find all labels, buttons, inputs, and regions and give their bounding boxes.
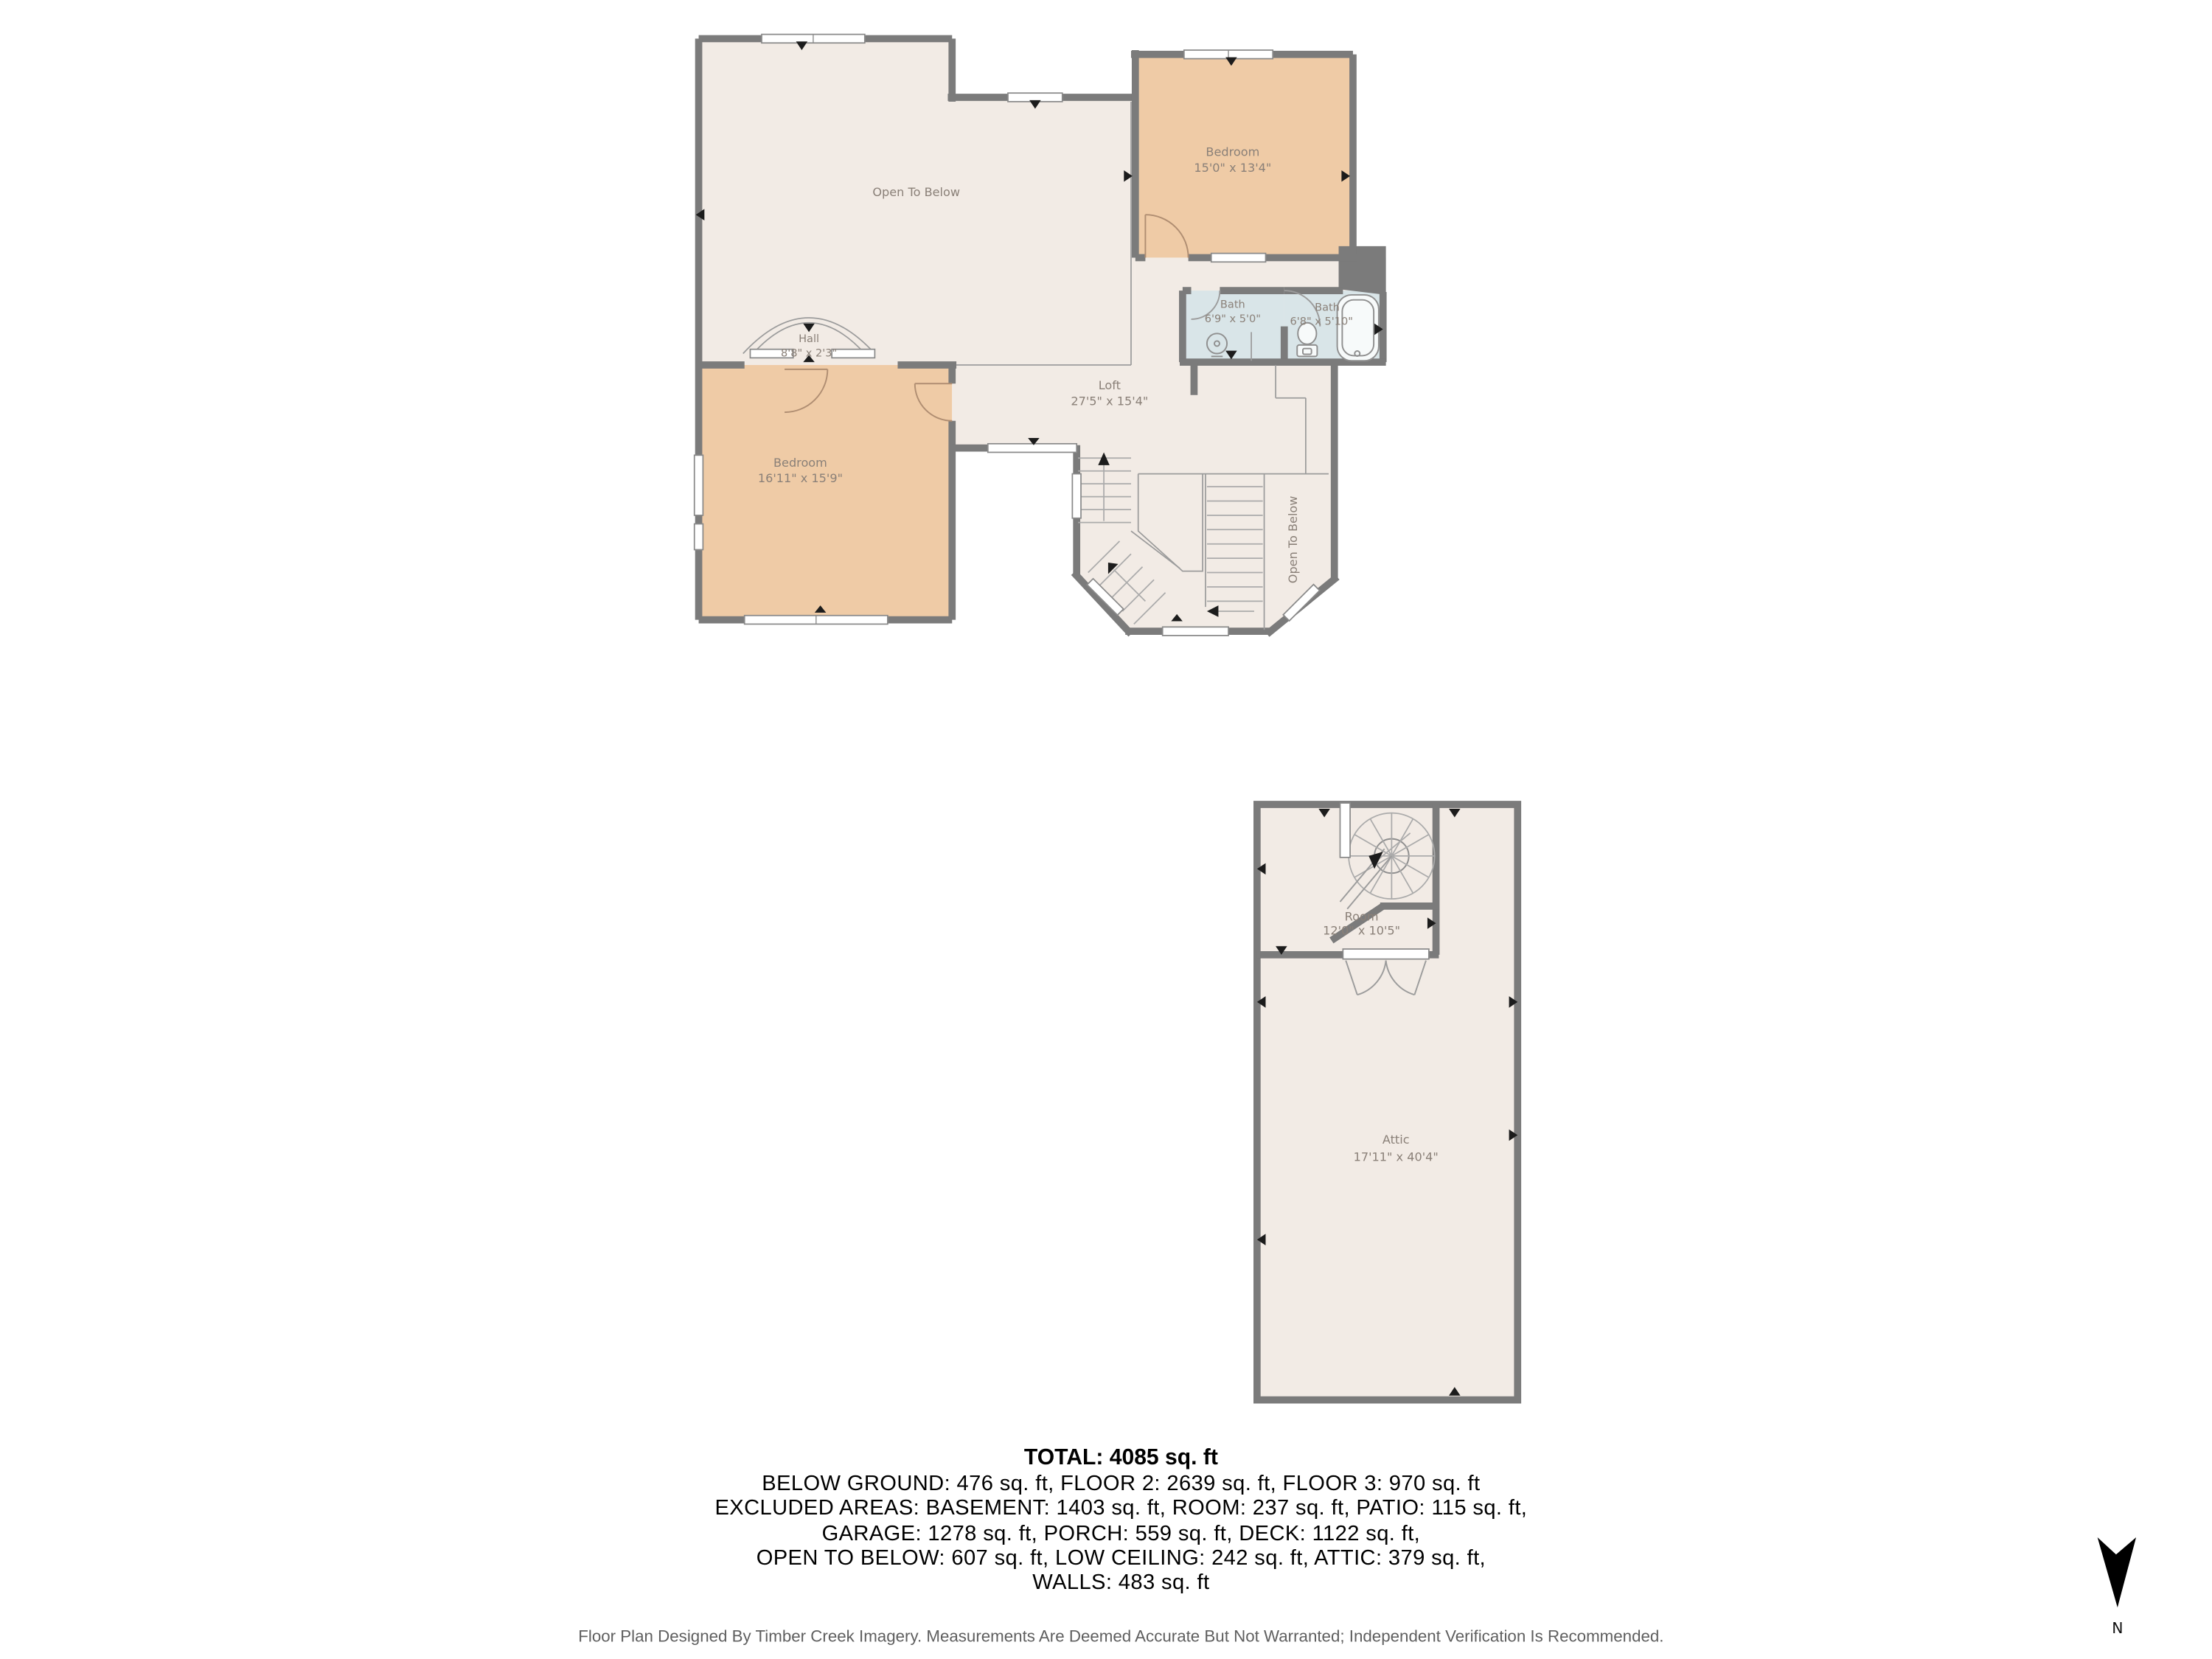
- summary-line-6: WALLS: 483 sq. ft: [1032, 1571, 1209, 1594]
- north-arrow-icon: [2098, 1537, 2136, 1607]
- open-to-below-label: Open To Below: [872, 185, 960, 199]
- north-arrow: N: [2098, 1537, 2136, 1637]
- bedroom2-dims: 16'11" x 15'9": [758, 471, 843, 485]
- bath1-dims: 6'9" x 5'0": [1205, 313, 1261, 325]
- hall-label: Hall: [799, 333, 819, 345]
- area-summary: TOTAL: 4085 sq. ft BELOW GROUND: 476 sq.…: [714, 1445, 1527, 1594]
- attic-area: [1257, 804, 1517, 1400]
- floor-plan-svg: Open To Below Bedroom 15'0" x 13'4" Bath…: [0, 0, 2212, 1659]
- summary-line-4: GARAGE: 1278 sq. ft, PORCH: 559 sq. ft, …: [822, 1522, 1421, 1545]
- summary-line-5: OPEN TO BELOW: 607 sq. ft, LOW CEILING: …: [757, 1546, 1486, 1570]
- floor3-plan: Room 12'0" x 10'5" Attic 17'11" x 40'4": [1257, 803, 1517, 1400]
- bedroom2-area: [699, 365, 953, 620]
- total-area-text: TOTAL: 4085 sq. ft: [1024, 1445, 1218, 1470]
- bedroom2-label: Bedroom: [773, 456, 827, 470]
- open-to-below-stair-label: Open To Below: [1286, 496, 1300, 584]
- loft-label: Loft: [1099, 378, 1121, 392]
- north-label: N: [2112, 1619, 2123, 1637]
- room-label: Room: [1345, 909, 1379, 923]
- room-dims: 12'0" x 10'5": [1323, 924, 1400, 938]
- attic-label: Attic: [1382, 1133, 1410, 1147]
- bath2-dims: 6'8" x 5'10": [1290, 316, 1353, 328]
- summary-line-2: BELOW GROUND: 476 sq. ft, FLOOR 2: 2639 …: [762, 1472, 1480, 1495]
- bath1-label: Bath: [1220, 298, 1245, 310]
- summary-line-3: EXCLUDED AREAS: BASEMENT: 1403 sq. ft, R…: [714, 1496, 1527, 1520]
- open-to-below-area: [699, 38, 1135, 365]
- bath2-label: Bath: [1315, 301, 1340, 313]
- bedroom1-dims: 15'0" x 13'4": [1194, 161, 1271, 175]
- bedroom1-label: Bedroom: [1206, 145, 1259, 159]
- attic-dims: 17'11" x 40'4": [1354, 1150, 1439, 1164]
- loft-dims: 27'5" x 15'4": [1071, 394, 1148, 408]
- floor-plan-page: Open To Below Bedroom 15'0" x 13'4" Bath…: [0, 0, 2212, 1659]
- disclaimer-text: Floor Plan Designed By Timber Creek Imag…: [578, 1627, 1663, 1646]
- hall-dims: 8'8" x 2'3": [781, 347, 837, 359]
- floor2-plan: Open To Below Bedroom 15'0" x 13'4" Bath…: [695, 35, 1386, 636]
- wall-chunk: [1339, 246, 1386, 295]
